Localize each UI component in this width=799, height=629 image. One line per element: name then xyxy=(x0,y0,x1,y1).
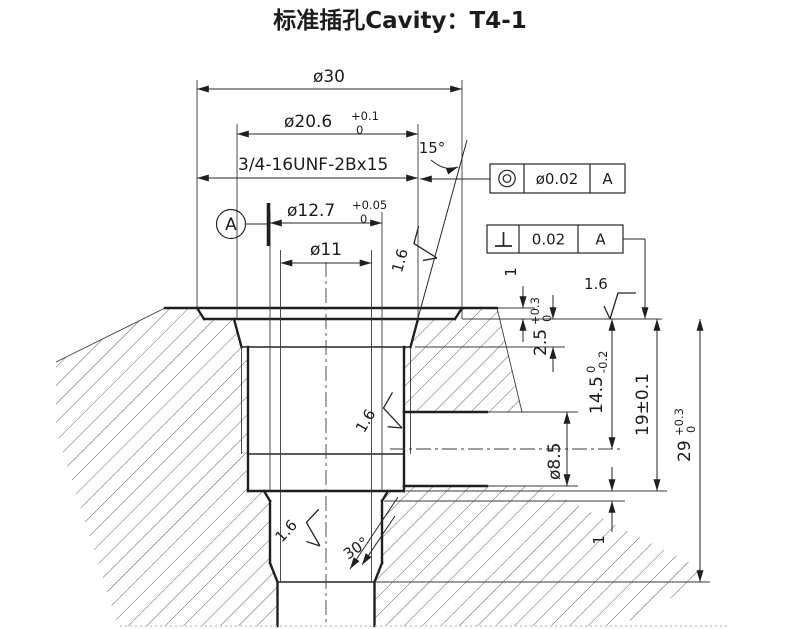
drawing-title: 标准插孔Cavity：T4-1 xyxy=(273,8,527,34)
label-finish-bottom-chamfer: 1.6 xyxy=(271,516,300,546)
dim-dia30: ø30 xyxy=(197,67,462,89)
label-dia127-upper-tol: +0.05 xyxy=(352,198,387,212)
label-depth29-lower-tol: 0 xyxy=(684,426,698,433)
label-depth29-group: 29 +0.3 0 xyxy=(672,408,698,462)
dim-angle15: 15° xyxy=(419,139,458,168)
roughness-icon xyxy=(410,226,443,264)
label-finish-taper: 1.6 xyxy=(388,247,412,275)
hatch-right-upper-block xyxy=(404,308,522,412)
label-angle15: 15° xyxy=(419,139,446,157)
fcf-perpendicularity-tol: 0.02 xyxy=(532,231,565,249)
label-dia85-group: ø8.5 xyxy=(545,443,565,480)
hatch-right-lower-block xyxy=(375,486,701,626)
label-dia206-upper-tol: +0.1 xyxy=(351,109,379,123)
datum-a: A xyxy=(217,203,269,246)
roughness-icon xyxy=(297,509,338,550)
taper-angle-line xyxy=(412,140,467,340)
label-dia11: ø11 xyxy=(310,240,342,260)
label-depth145-lower-tol: -0.2 xyxy=(596,351,610,373)
label-angle30: 30° xyxy=(340,533,372,563)
label-dia206: ø20.6 xyxy=(284,112,332,132)
label-dia127-lower-tol: 0 xyxy=(360,212,367,226)
datum-label: A xyxy=(225,215,237,235)
label-depth25: 2.5 xyxy=(531,329,551,356)
dim-dia85: ø8.5 xyxy=(545,412,567,486)
label-thread-spec: 3/4-16UNF-2Bx15 xyxy=(238,155,388,175)
label-depth1-top: 1 xyxy=(502,267,520,277)
label-depth19: 19±0.1 xyxy=(633,373,653,436)
dim-depth25: 2.5 +0.3 0 xyxy=(528,295,554,372)
label-depth25-lower-tol: 0 xyxy=(540,315,554,322)
label-angle30-group: 30° xyxy=(340,533,372,563)
angle15-arc-leader xyxy=(431,160,458,168)
dim-dia11: ø11 xyxy=(281,240,372,263)
label-depth145: 14.5 xyxy=(587,376,607,414)
hatch-left-block xyxy=(56,308,278,626)
label-depth29: 29 xyxy=(675,440,695,462)
fcf-perpendicularity-datum: A xyxy=(595,231,606,249)
dim-depth19: 19±0.1 xyxy=(633,319,657,491)
label-dia30: ø30 xyxy=(313,67,345,87)
label-depth1-bottom: 1 xyxy=(590,535,608,545)
label-dia206-lower-tol: 0 xyxy=(356,123,363,137)
label-depth19-group: 19±0.1 xyxy=(633,373,653,436)
label-finish-spotface: 1.6 xyxy=(584,275,608,293)
label-depth145-group: 14.5 0 -0.2 xyxy=(584,351,610,414)
fcf-concentricity-tol: ø0.02 xyxy=(536,170,579,188)
perpendicularity-icon xyxy=(495,232,512,246)
label-dia127: ø12.7 xyxy=(287,201,335,221)
drawing-canvas: 标准插孔Cavity：T4-1 xyxy=(0,0,799,629)
label-dia85: ø8.5 xyxy=(545,443,565,480)
roughness-icon xyxy=(604,293,636,319)
surface-finish-spotface: 1.6 xyxy=(584,275,636,319)
surface-finish-taper: 1.6 xyxy=(388,221,443,281)
dim-depth29: 29 +0.3 0 xyxy=(672,319,700,582)
label-finish-thread-bore: 1.6 xyxy=(352,406,380,436)
dim-depth1-top: 1 xyxy=(502,267,523,342)
cavity-drawing-svg: 标准插孔Cavity：T4-1 xyxy=(0,0,799,629)
dim-dia206: ø20.6 +0.1 0 xyxy=(237,109,418,137)
surface-finish-bottom-chamfer: 1.6 xyxy=(271,497,337,564)
dim-thread: 3/4-16UNF-2Bx15 xyxy=(197,155,418,178)
label-depth25-group: 2.5 +0.3 0 xyxy=(528,297,554,356)
dim-dia127: ø12.7 +0.05 0 xyxy=(270,198,387,226)
concentricity-icon xyxy=(499,170,515,186)
fcf-concentricity-datum: A xyxy=(602,170,613,188)
dim-depth145: 14.5 0 -0.2 xyxy=(584,319,612,449)
